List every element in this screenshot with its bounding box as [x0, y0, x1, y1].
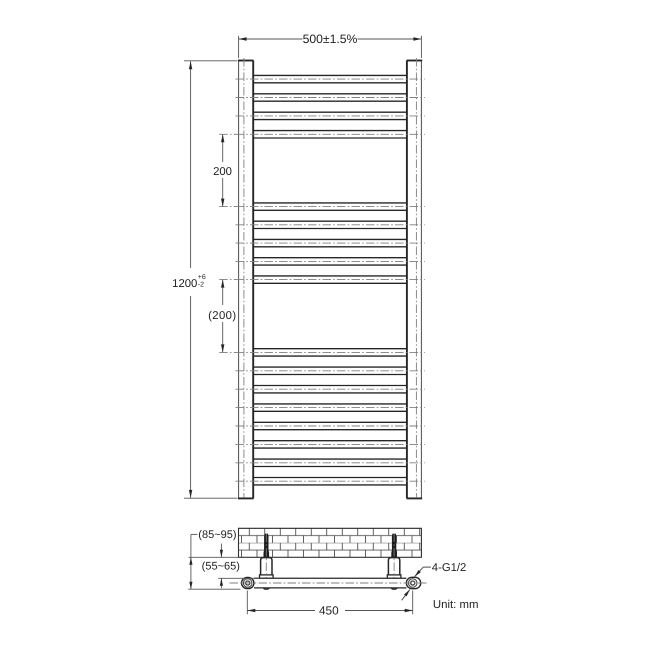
- svg-text:Unit: mm: Unit: mm: [433, 599, 479, 611]
- svg-text:(55~65): (55~65): [202, 561, 240, 573]
- svg-text:(85~95): (85~95): [198, 529, 236, 541]
- svg-text:4-G1/2: 4-G1/2: [432, 562, 467, 574]
- svg-text:-2: -2: [198, 281, 204, 288]
- svg-text:+6: +6: [198, 274, 206, 281]
- svg-text:1200: 1200: [172, 278, 197, 290]
- svg-text:(200): (200): [208, 310, 236, 322]
- svg-text:450: 450: [319, 604, 339, 618]
- svg-text:500±1.5%: 500±1.5%: [303, 32, 358, 46]
- svg-text:200: 200: [213, 166, 232, 178]
